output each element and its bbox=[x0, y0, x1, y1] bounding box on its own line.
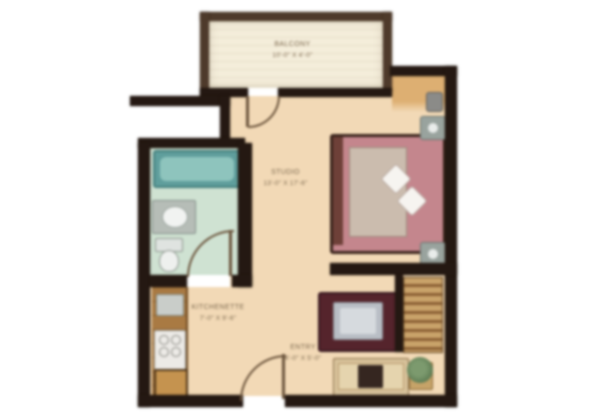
entry-dims: 4'-0" X 5'-0" bbox=[272, 354, 334, 364]
tv bbox=[358, 365, 383, 388]
wall-balcony-right bbox=[383, 12, 392, 92]
toilet-bowl bbox=[159, 250, 179, 272]
stove-burner bbox=[171, 335, 181, 345]
wall-bottom-right bbox=[285, 395, 457, 407]
stove bbox=[154, 330, 186, 370]
floor-plan-scene: BALCONY 10'-0" X 4'-0" STUDIO 13'-0" X 1… bbox=[0, 0, 600, 418]
wall-right bbox=[445, 66, 457, 407]
sink bbox=[162, 206, 188, 228]
entry-label: ENTRY 4'-0" X 5'-0" bbox=[272, 343, 334, 363]
wall-bath-right bbox=[238, 143, 252, 287]
wall-top-left-horizontal bbox=[130, 96, 230, 106]
wall-bath-bottom-left bbox=[150, 275, 187, 287]
stove-burner bbox=[159, 347, 169, 357]
kitchen-dims: 7'-0" X 9'-6" bbox=[170, 314, 266, 324]
wall-left bbox=[138, 143, 150, 407]
nightstand bbox=[420, 116, 446, 140]
studio-name: STUDIO bbox=[228, 168, 343, 179]
wall-bath-bottom-right bbox=[232, 275, 252, 287]
wall-balcony-top bbox=[200, 12, 392, 21]
bed bbox=[330, 134, 446, 254]
wall-balcony-left bbox=[200, 12, 209, 97]
bathtub-basin bbox=[160, 157, 234, 181]
media-console bbox=[333, 358, 409, 397]
stove-burner bbox=[171, 347, 181, 357]
bed-footboard bbox=[333, 137, 343, 245]
bathroom-door-leaf bbox=[229, 230, 232, 276]
alcove-chair bbox=[426, 92, 443, 112]
bathroom-vanity bbox=[152, 200, 196, 234]
stove-burner bbox=[159, 335, 169, 345]
balcony-label: BALCONY 10'-0" X 4'-0" bbox=[225, 40, 360, 60]
wall-closet-left bbox=[395, 275, 403, 352]
coffee-table bbox=[333, 302, 383, 340]
floor-plan: BALCONY 10'-0" X 4'-0" STUDIO 13'-0" X 1… bbox=[0, 0, 600, 418]
studio-label: STUDIO 13'-0" X 17'-6" bbox=[228, 168, 343, 188]
balcony-door-leaf bbox=[246, 96, 249, 127]
wall-bed-stub bbox=[330, 263, 457, 275]
balcony-dims: 10'-0" X 4'-0" bbox=[225, 51, 360, 61]
entry-name: ENTRY bbox=[272, 343, 334, 354]
wall-bath-top bbox=[138, 138, 245, 148]
wall-bottom-left bbox=[138, 395, 243, 407]
studio-dims: 13'-0" X 17'-6" bbox=[228, 179, 343, 189]
coffee-table-top bbox=[340, 308, 376, 334]
balcony-name: BALCONY bbox=[225, 40, 360, 51]
wall-studio-top-right bbox=[278, 88, 392, 97]
kitchen-label: KITCHENETTE 7'-0" X 9'-6" bbox=[170, 303, 266, 323]
plant bbox=[407, 357, 433, 383]
closet-shelves bbox=[403, 277, 443, 353]
kitchen-name: KITCHENETTE bbox=[170, 303, 266, 314]
